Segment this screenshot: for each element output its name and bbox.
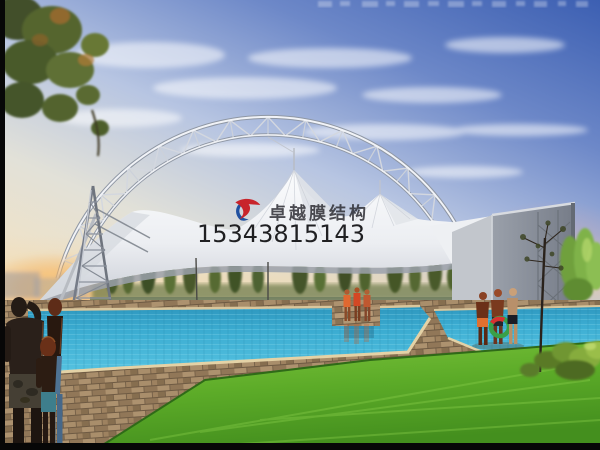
rendered-photo: 卓越膜结构 15343815143 [0, 0, 600, 450]
scene-artwork [0, 0, 600, 450]
frame-edge-bottom [0, 443, 600, 450]
frame-edge-left [0, 0, 5, 450]
water-reflections [344, 324, 369, 344]
